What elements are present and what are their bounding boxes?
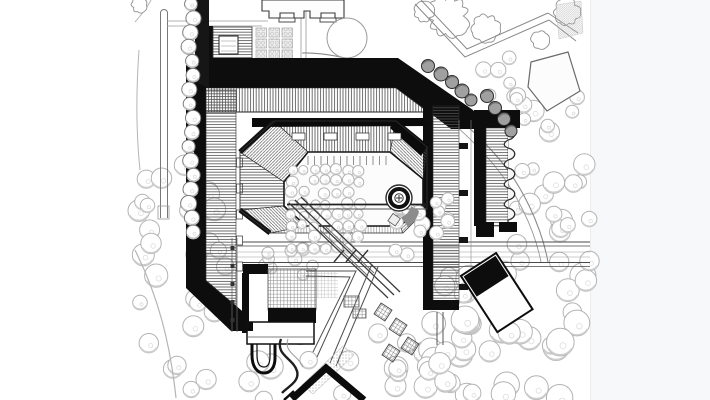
tree [287,244,296,253]
annex-grid-roof [268,269,316,310]
tree [354,209,363,218]
tree [502,51,516,65]
tree [186,225,200,239]
tree [183,153,199,169]
tree [547,328,575,356]
dark-tree [498,113,511,126]
tree [541,119,554,132]
tree [285,186,297,198]
tree [311,165,320,174]
tree [309,243,320,254]
tree [318,188,329,199]
right-margin [591,0,710,400]
tree [353,166,364,177]
tree [185,125,200,140]
tree [331,175,342,186]
tree [515,164,530,179]
tree [330,164,341,175]
north-building-bay [320,18,336,22]
annex-bar [243,264,268,274]
dark-tree [489,102,502,115]
tree [355,220,367,232]
northwest-annex [205,26,252,62]
tree [297,243,308,254]
west-wing-roof [206,90,236,306]
tree [288,166,297,175]
north-wing-roof [204,88,428,112]
tree [442,193,454,205]
tree [511,252,529,270]
tree [543,172,565,194]
dark-tree [481,90,494,103]
tree [354,177,364,187]
tree [182,82,197,97]
tree [479,341,500,362]
tree [286,231,296,241]
tree [184,210,199,225]
tree [297,220,306,229]
tree [546,206,562,222]
tree [525,376,549,400]
annex-shadow-band [474,128,486,226]
tree [389,360,406,377]
tree [332,208,344,220]
tree [151,168,171,188]
tree [507,235,527,255]
tree [239,371,259,391]
tree [422,312,446,336]
tree [463,384,481,400]
tree [369,324,388,343]
tree [182,140,195,153]
tree [186,68,200,82]
tree [430,226,444,240]
tree [133,295,148,310]
tree [187,168,200,181]
tree [181,196,197,212]
tree [451,306,479,334]
tree [196,369,216,389]
tree [183,316,204,337]
tree [343,174,355,186]
annex-step [247,322,253,331]
tree [320,164,330,174]
tree [582,211,597,226]
north-building-bay [279,18,295,22]
tree [441,214,455,228]
tree [286,221,296,231]
site-plan-page [0,0,710,400]
planting-beds [256,28,293,59]
northeast-hatch-field [556,1,583,39]
site-plan-drawing [0,0,710,400]
tree [300,212,309,221]
tree [139,334,158,353]
annex-south-shadow [268,308,316,323]
tree [183,25,198,40]
tree [491,62,506,77]
trellis [344,296,359,307]
tree [574,154,595,175]
tree [342,198,354,210]
tree [430,197,441,208]
tree [141,233,161,253]
tree [560,218,575,233]
tree [343,187,354,198]
tree [299,166,308,175]
annex-stub [476,222,494,237]
tree [186,11,201,26]
tree [400,248,414,262]
trellis [353,309,366,318]
tree [389,244,402,257]
tree [332,189,341,198]
tree [519,193,541,215]
tree [565,175,583,193]
tree [343,221,354,232]
dark-tree [505,125,517,137]
tree [504,77,516,89]
tree [140,198,154,212]
tree [183,98,196,111]
annex-skylight [219,36,238,54]
dark-tree [422,60,435,73]
tree [181,39,196,54]
tree [510,93,523,106]
tree [580,251,599,270]
tree [183,182,198,197]
tree [309,175,318,184]
tree [429,353,451,375]
east-wing-cap [423,300,459,310]
tree [575,270,596,291]
tree [343,210,352,219]
tree [321,244,332,255]
tree [320,175,330,185]
tree [566,105,579,118]
tree [299,186,309,196]
tree [286,210,296,220]
annex-stub [499,222,517,232]
tree [186,110,201,125]
tree [414,225,426,237]
tree [185,0,198,10]
tree [262,247,274,259]
tree [476,62,492,78]
tree [186,54,199,67]
dark-tree [465,94,477,106]
tree [145,264,168,287]
tree [352,231,363,242]
